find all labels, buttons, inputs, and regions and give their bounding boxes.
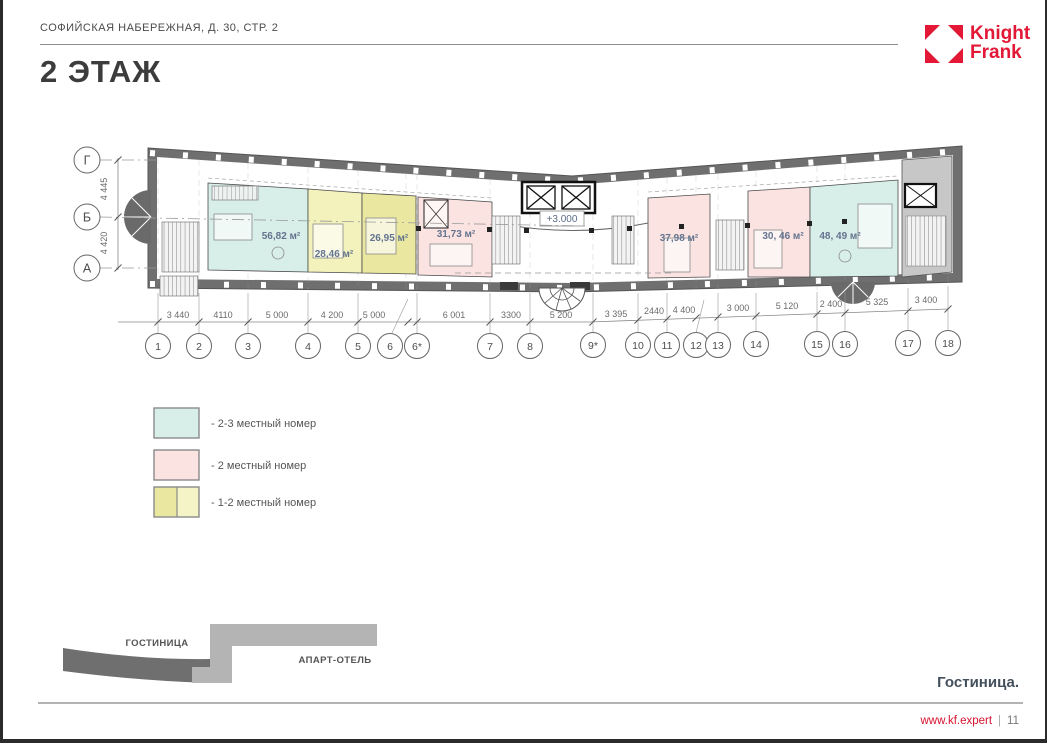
legend: - 2-3 местный номер - 2 местный номер - … [154, 408, 316, 517]
row-dim-label: 4 420 [99, 232, 109, 255]
svg-text:3: 3 [245, 341, 251, 353]
svg-text:15: 15 [811, 339, 823, 351]
svg-text:3 395: 3 395 [605, 309, 628, 319]
svg-text:5: 5 [355, 341, 361, 353]
svg-text:3300: 3300 [501, 310, 521, 320]
svg-text:9*: 9* [588, 340, 598, 352]
section-caption: Гостиница. [937, 674, 1019, 691]
svg-text:Г: Г [84, 154, 91, 168]
dimension-system: 3 440 4110 5 000 4 200 5 000 6 001 3300 … [118, 286, 961, 359]
footer-divider [38, 702, 1023, 704]
site-map-apart-label: АПАРТ-ОТЕЛЬ [298, 655, 371, 666]
svg-text:10: 10 [632, 340, 644, 352]
svg-text:7: 7 [487, 341, 493, 353]
legend-swatch-1-2 [154, 487, 199, 517]
area-label: 30, 46 м² [762, 231, 804, 242]
legend-label: - 2 местный номер [211, 460, 306, 472]
svg-text:4: 4 [305, 341, 311, 353]
area-label: 37,98 м² [660, 233, 699, 244]
site-map-hotel-block [63, 648, 210, 683]
site-map-apart-block [192, 624, 377, 683]
legend-swatch-2-3 [154, 408, 199, 438]
svg-text:11: 11 [662, 340, 673, 352]
footer-website-link[interactable]: www.kf.expert [920, 715, 992, 727]
svg-text:5 000: 5 000 [363, 310, 386, 320]
svg-text:А: А [83, 262, 92, 276]
svg-text:6*: 6* [412, 341, 422, 353]
svg-text:4110: 4110 [213, 310, 232, 320]
area-label: 28,46 м² [315, 249, 354, 260]
footer-separator: | [992, 715, 1007, 727]
site-map-hotel-label: ГОСТИНИЦА [126, 638, 189, 649]
svg-text:13: 13 [712, 340, 724, 352]
svg-text:2440: 2440 [644, 306, 664, 316]
row-axis-bubbles: Г Б А [74, 147, 100, 281]
brochure-page: СОФИЙСКАЯ НАБЕРЕЖНАЯ, Д. 30, СТР. 2 2 ЭТ… [0, 0, 1047, 743]
svg-text:4 400: 4 400 [673, 305, 696, 315]
area-label: 31,73 м² [437, 229, 476, 240]
svg-text:5 200: 5 200 [550, 310, 573, 320]
area-label: 48, 49 м² [819, 231, 861, 242]
legend-label: - 2-3 местный номер [211, 418, 316, 430]
footer: www.kf.expert|11 [920, 715, 1019, 727]
footer-page-number: 11 [1007, 715, 1019, 727]
level-mark: +3.000 [540, 211, 584, 226]
floor-plan-canvas: +3.000 [0, 0, 1047, 743]
svg-text:2 400: 2 400 [820, 299, 843, 309]
svg-text:5 120: 5 120 [776, 301, 799, 311]
svg-text:14: 14 [750, 339, 762, 351]
svg-text:16: 16 [839, 339, 851, 351]
row-dim-label: 4 445 [99, 178, 109, 201]
svg-text:5 325: 5 325 [866, 297, 889, 307]
svg-text:8: 8 [527, 341, 533, 353]
legend-swatch-2 [154, 450, 199, 480]
svg-text:6: 6 [387, 341, 393, 353]
level-mark-label: +3.000 [547, 214, 578, 225]
svg-text:4 200: 4 200 [321, 310, 344, 320]
site-map: ГОСТИНИЦА АПАРТ-ОТЕЛЬ [63, 624, 377, 683]
svg-text:1: 1 [155, 341, 161, 353]
svg-text:2: 2 [196, 341, 202, 353]
svg-text:3 400: 3 400 [915, 295, 938, 305]
area-label: 26,95 м² [370, 233, 409, 244]
svg-text:5 000: 5 000 [266, 310, 289, 320]
svg-text:12: 12 [690, 340, 702, 352]
legend-label: - 1-2 местный номер [211, 497, 316, 509]
svg-text:6 001: 6 001 [443, 310, 466, 320]
svg-text:3 000: 3 000 [727, 303, 750, 313]
svg-text:3 440: 3 440 [167, 310, 190, 320]
svg-text:18: 18 [942, 338, 954, 350]
stair-flight [906, 216, 946, 266]
central-elevators [522, 182, 595, 213]
svg-text:Б: Б [83, 211, 91, 225]
dimension-line [118, 309, 948, 322]
svg-text:17: 17 [902, 338, 914, 350]
right-stairwell [902, 156, 952, 277]
column-axis-bubbles: 1 2 3 4 5 6 6* 7 8 9* 10 11 12 13 14 15 … [146, 331, 961, 359]
area-label: 56,82 м² [262, 231, 301, 242]
